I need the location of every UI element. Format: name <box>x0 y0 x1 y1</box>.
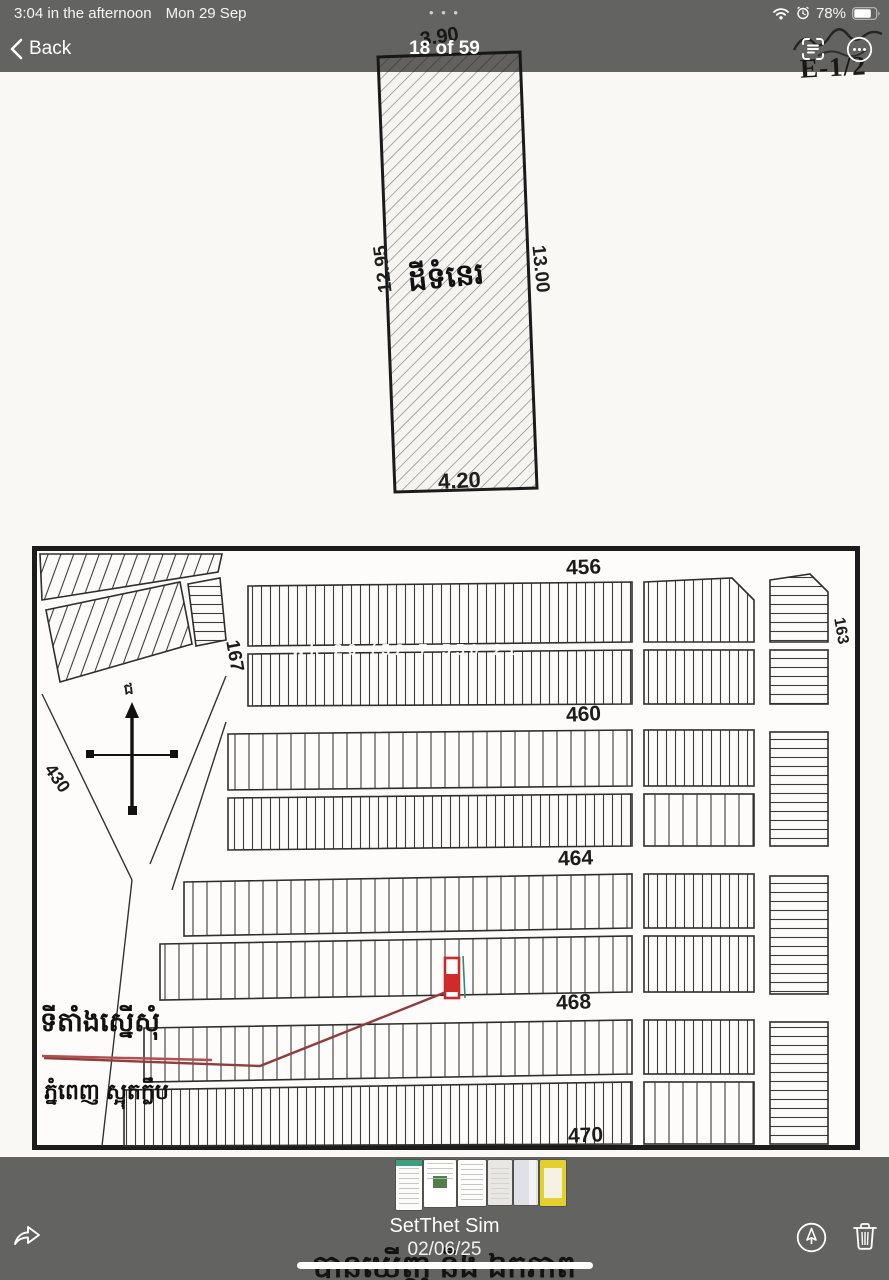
page-counter: 18 of 59 <box>0 26 889 72</box>
alarm-clock-icon <box>796 6 810 20</box>
more-options-icon[interactable] <box>846 36 873 63</box>
plot-label: ដីទំនេរ <box>406 254 486 306</box>
battery-percent: 78% <box>816 5 846 22</box>
cadastral-map-linework <box>32 546 860 1150</box>
thumbnail-page-6[interactable] <box>540 1160 566 1206</box>
status-bar: 3:04 in the afternoon Mon 29 Sep • • • 7… <box>0 0 889 26</box>
street-label-468: 468 <box>556 990 592 1015</box>
plot-dimension-bottom: 4.20 <box>437 467 481 495</box>
scanned-document: 3.90 E-1/2 12.95 13.00 ដីទំនេរ 4.20 <box>0 0 889 1280</box>
street-label-470: 470 <box>568 1123 604 1148</box>
thumbnail-page-current[interactable] <box>396 1160 422 1210</box>
wifi-icon <box>772 7 790 20</box>
street-label-460: 460 <box>565 702 601 728</box>
thumbnail-page-5[interactable] <box>514 1160 538 1205</box>
multitask-dots-icon: • • • <box>0 5 889 20</box>
page-thumbnail-strip <box>396 1160 566 1210</box>
document-owner: SetThet Sim <box>0 1215 889 1238</box>
markup-icon[interactable] <box>796 1222 827 1253</box>
watermark-text: wh 20 (52 7 550 21 <box>292 642 521 660</box>
thumbnail-page-4[interactable] <box>488 1160 512 1205</box>
thumbnail-page-3[interactable] <box>458 1160 486 1206</box>
scan-text-icon[interactable] <box>800 36 826 62</box>
home-indicator[interactable] <box>297 1262 593 1269</box>
screen: 3.90 E-1/2 12.95 13.00 ដីទំនេរ 4.20 <box>0 0 889 1280</box>
street-label-464: 464 <box>558 846 594 871</box>
street-label-456: 456 <box>566 555 602 580</box>
trash-icon[interactable] <box>851 1221 879 1251</box>
navigation-bar: Back 18 of 59 <box>0 26 889 72</box>
document-date: 02/06/25 <box>0 1239 889 1261</box>
battery-icon <box>852 7 881 20</box>
city-label: ភ្នំពេញ ស្អុតក្លឹប <box>44 1078 169 1110</box>
location-label: ទីតាំងស្នើសុំ <box>40 1006 160 1045</box>
thumbnail-page-2[interactable] <box>424 1160 456 1207</box>
share-icon[interactable] <box>12 1222 42 1252</box>
